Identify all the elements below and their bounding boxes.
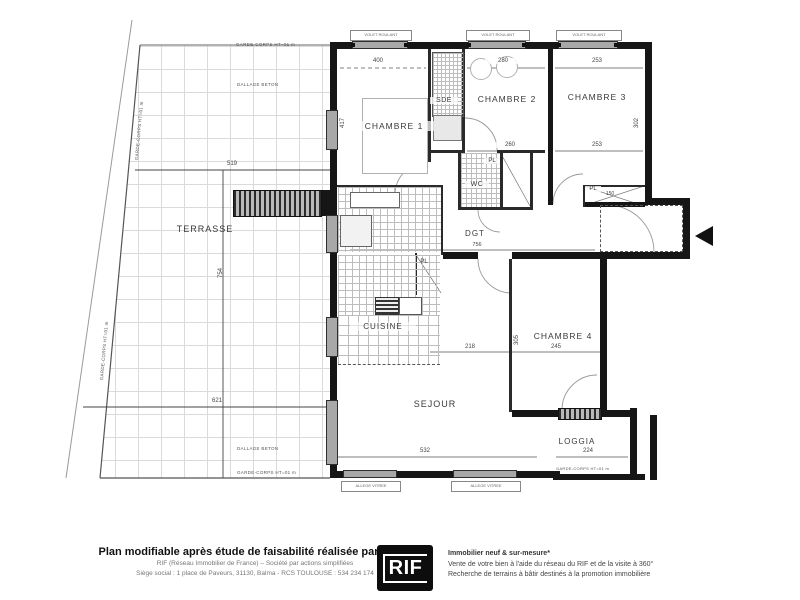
window-chambre1 xyxy=(352,41,408,49)
dim-chambre1-w: 400 xyxy=(360,58,396,64)
dim-chambre2-w: 280 xyxy=(485,58,521,64)
note-dallage-bottom: DALLAGE BETON xyxy=(237,446,278,451)
wall-loggia-right-b xyxy=(650,415,657,480)
window-chambre2 xyxy=(468,41,526,49)
window-post xyxy=(522,43,526,47)
room-label-sejour: SEJOUR xyxy=(395,399,475,409)
room-label-pl-wc: PL xyxy=(484,158,500,164)
window-chambre3 xyxy=(558,41,618,49)
window-post xyxy=(351,43,355,47)
window-left-2 xyxy=(326,215,338,253)
room-label-chambre3: CHAMBRE 3 xyxy=(557,92,637,102)
partition-pl-right xyxy=(530,150,533,210)
footer-right1: Immobilier neuf & sur-mesure* xyxy=(448,549,748,559)
dim-terrasse-height: 754 xyxy=(218,268,224,278)
wall-hall-bottom-a xyxy=(443,252,478,259)
kitchen-sink xyxy=(399,297,422,315)
room-label-pl-hall: PL xyxy=(416,259,432,265)
footer-right2: Vente de votre bien à l'aide du réseau d… xyxy=(448,560,748,570)
wall-louver-end-block xyxy=(320,190,337,216)
room-label-cuisine: CUISINE xyxy=(350,322,416,331)
wall-entry-right xyxy=(683,198,690,259)
partition-kitchen-right xyxy=(441,185,443,255)
partition-wc-top-b xyxy=(497,150,545,153)
dim-terrasse-bottom: 621 xyxy=(199,398,235,404)
window-post xyxy=(467,43,471,47)
wall-loggia-right-a xyxy=(630,408,637,480)
floor-plan-page: VOLET ROULANT VOLET ROULANT VOLET ROULAN… xyxy=(0,0,800,600)
dim-chambre4-w: 245 xyxy=(538,344,574,350)
footer-title: Plan modifiable après étude de faisabili… xyxy=(88,546,422,558)
dim-terrasse-top: 519 xyxy=(214,161,250,167)
partition-wc-bottom xyxy=(458,207,533,210)
window-label-5: ALLEGE VITREE xyxy=(451,481,521,492)
rif-logo-text: RIF xyxy=(383,554,428,583)
terrace-louver-band xyxy=(233,190,322,217)
room-label-sde: SDE xyxy=(430,97,458,104)
bed-chambre1 xyxy=(362,98,428,174)
window-left-1 xyxy=(326,110,338,150)
room-label-chambre1: CHAMBRE 1 xyxy=(354,121,434,131)
wall-right-upper xyxy=(645,42,652,205)
dim-chambre2-w2: 260 xyxy=(492,142,528,148)
dim-chambre3-w-bottom: 253 xyxy=(579,142,615,148)
dim-chambre3-w-top: 253 xyxy=(579,58,615,64)
note-dallage-top: DALLAGE BETON xyxy=(237,82,278,87)
dim-sejour-opening: 218 xyxy=(452,344,488,350)
room-label-terrasse: TERRASSE xyxy=(160,224,250,234)
kitchen-counter xyxy=(340,215,372,247)
footer-line3: Siège social : 1 place de Paveurs, 31130… xyxy=(88,570,422,577)
room-label-wc: WC xyxy=(465,181,489,188)
window-sejour-1 xyxy=(343,470,397,478)
dim-dgt: 756 xyxy=(459,242,495,248)
window-sejour-2 xyxy=(453,470,517,478)
dim-chambre3-h: 302 xyxy=(634,118,640,128)
window-left-3 xyxy=(326,317,338,357)
dim-chambre4-h: 305 xyxy=(514,335,520,345)
footer-right3: Recherche de terrains à bâtir destinés à… xyxy=(448,570,748,580)
note-garde-corps-bottom: GARDE-CORPS HT=01 m xyxy=(237,470,296,475)
sde-floor-tiles xyxy=(432,52,464,117)
shower-tray xyxy=(433,115,462,141)
dim-pl-chambre3: 150 xyxy=(598,191,622,197)
room-label-chambre2: CHAMBRE 2 xyxy=(467,94,547,104)
entrance-arrow-icon xyxy=(695,226,713,246)
window-label-2: VOLET ROULANT xyxy=(466,30,530,41)
loggia-glazing xyxy=(558,408,602,420)
window-label-1: VOLET ROULANT xyxy=(350,30,412,41)
dim-sejour-w: 532 xyxy=(407,448,443,454)
rif-logo: RIF xyxy=(377,545,433,591)
window-label-3: VOLET ROULANT xyxy=(556,30,622,41)
window-post xyxy=(404,43,408,47)
room-label-dgt: DGT xyxy=(457,229,493,238)
partition-chambre4-left xyxy=(509,259,512,412)
partition-chambre1-right xyxy=(428,49,431,162)
partition-chambre2-3 xyxy=(548,49,553,205)
kitchen-hob xyxy=(375,297,399,315)
dim-chambre1-h: 417 xyxy=(340,118,346,128)
room-label-loggia: LOGGIA xyxy=(545,437,609,446)
dim-loggia-w: 224 xyxy=(570,448,606,454)
window-post xyxy=(614,43,618,47)
window-left-bay xyxy=(326,400,338,465)
room-label-chambre4: CHAMBRE 4 xyxy=(523,331,603,341)
window-post xyxy=(557,43,561,47)
partition-wc-mid xyxy=(500,150,503,210)
note-garde-corps-top: GARDE-CORPS HT=01 m xyxy=(236,42,295,47)
note-garde-corps-loggia: GARDE-CORPS HT=01 m xyxy=(556,466,609,471)
kitchen-appliance xyxy=(350,192,400,208)
footer-line2: RIF (Réseau Immobilier de France) – Soci… xyxy=(88,560,422,567)
window-label-4: ALLEGE VITREE xyxy=(341,481,401,492)
entrance-landing xyxy=(600,205,683,252)
